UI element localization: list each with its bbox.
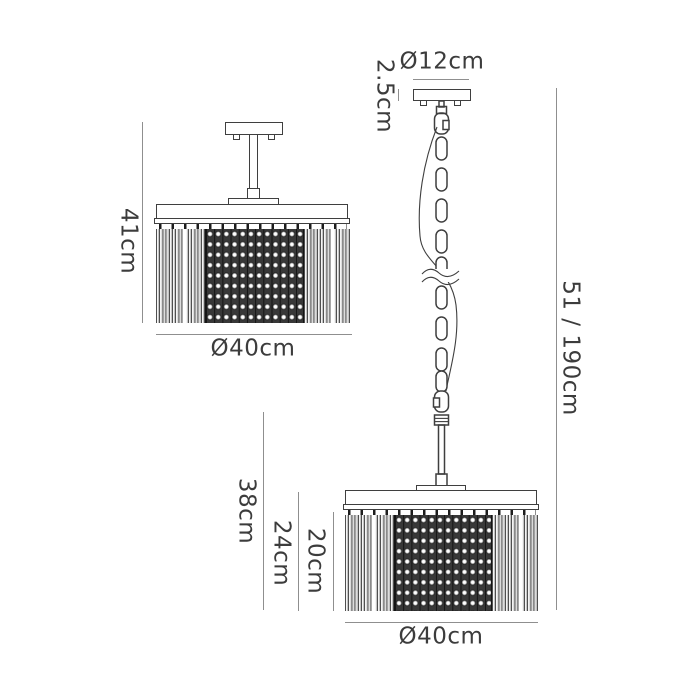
label-shade-overall-38: 38cm bbox=[235, 478, 258, 544]
quick-link-top-sleeve bbox=[443, 121, 449, 130]
label-height-41: 41cm bbox=[117, 208, 140, 274]
glass-rods-left bbox=[156, 229, 205, 323]
dim-line-shade-overall-38 bbox=[263, 412, 264, 610]
suspension-chain bbox=[400, 100, 484, 495]
chain-link bbox=[436, 137, 447, 160]
chain-link bbox=[436, 286, 447, 309]
label-canopy-diameter: Ø12cm bbox=[400, 51, 485, 74]
chain-link bbox=[436, 348, 447, 371]
dim-line-shade-body-24 bbox=[298, 492, 299, 611]
label-shade-body-24: 24cm bbox=[270, 520, 293, 586]
dimension-diagram: 41cm Ø40cm Ø12cm 2.5cm bbox=[0, 0, 700, 700]
pendant-shade-top-band bbox=[345, 490, 537, 505]
pendant-glass-rods-right bbox=[492, 515, 538, 611]
pendant-glass-rods-left bbox=[345, 515, 394, 611]
glass-rods-right bbox=[304, 229, 350, 323]
drum-shade bbox=[156, 229, 350, 323]
dim-line-canopy-diameter bbox=[413, 79, 469, 80]
cord-grip bbox=[435, 415, 449, 425]
chain-link bbox=[436, 317, 447, 340]
pendant-drum-shade bbox=[345, 515, 538, 611]
chain-link bbox=[436, 371, 447, 392]
pendant-crystal-mesh-panel bbox=[394, 515, 493, 611]
quick-link-bottom-sleeve bbox=[434, 398, 440, 407]
dim-line-height-41 bbox=[142, 122, 143, 323]
label-overall-drop: 51 / 190cm bbox=[559, 280, 582, 416]
crystal-mesh-panel bbox=[205, 229, 305, 323]
dim-line-rod-drop-20 bbox=[333, 512, 334, 611]
plate-nub-left bbox=[233, 134, 240, 140]
shade-top-band bbox=[156, 204, 348, 219]
label-pendant-diameter: Ø40cm bbox=[399, 626, 484, 649]
hanging-rod bbox=[439, 425, 445, 474]
plate-nub-right bbox=[268, 134, 275, 140]
stem bbox=[249, 134, 258, 189]
dim-tick-canopy-height bbox=[398, 89, 399, 101]
chain-link bbox=[436, 230, 447, 253]
chain-link bbox=[436, 199, 447, 222]
label-canopy-height: 2.5cm bbox=[373, 59, 396, 133]
label-rod-drop-20: 20cm bbox=[304, 528, 327, 594]
chain-link bbox=[436, 168, 447, 191]
label-diameter-40: Ø40cm bbox=[211, 338, 296, 361]
